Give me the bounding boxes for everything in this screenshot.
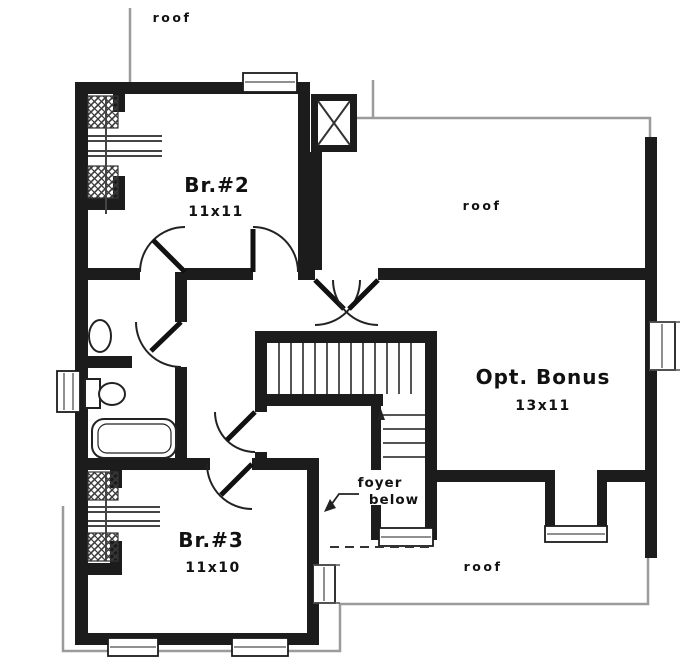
window-br3-bottom-right — [232, 638, 288, 656]
wall-bath-a — [175, 272, 187, 322]
wall-separator-c — [298, 268, 315, 280]
closet-shelf-hatch — [88, 166, 118, 198]
wall-stair-left-upper — [255, 331, 267, 394]
roof-label-top: roof — [153, 10, 192, 25]
wall-stair-top — [255, 331, 437, 343]
door-stair-landing — [215, 412, 255, 452]
door-br2-right — [253, 227, 298, 272]
closet-shelf-lines — [88, 507, 160, 526]
room-dims-br2: 11x11 — [188, 204, 244, 220]
door-leaf — [151, 322, 181, 351]
closet-shelf-lines — [88, 136, 162, 156]
wall-separator-b — [185, 268, 253, 280]
window-br3-bottom-left — [108, 638, 158, 656]
closet-shelf-hatch — [88, 472, 118, 500]
wall-stair-midrail — [255, 394, 383, 406]
toilet-bowl-icon — [99, 383, 125, 405]
floor-plan-drawing: roof Br.#2 11x11 roof Opt. Bonus 13x11 f… — [0, 0, 683, 664]
labels: roof Br.#2 11x11 roof Opt. Bonus 13x11 f… — [153, 10, 611, 576]
wall-separator-d — [378, 268, 652, 280]
window-br2-top — [243, 73, 297, 92]
wall-bath-divider — [75, 356, 132, 368]
roof-label-bottom: roof — [464, 559, 503, 574]
stair-treads-lower — [383, 415, 425, 457]
door-leaf — [349, 280, 378, 309]
floor-plan: roof Br.#2 11x11 roof Opt. Bonus 13x11 f… — [0, 0, 683, 664]
window-bath-left — [57, 371, 80, 412]
wall-br3-top-b — [252, 458, 319, 470]
window-bonus-right — [649, 322, 680, 370]
wall-br3-closet-horz — [75, 563, 122, 575]
door-leaf — [221, 464, 252, 495]
foyer-leader-line — [331, 494, 359, 505]
room-dims-bonus: 13x11 — [515, 398, 571, 414]
door-swing-arc — [253, 227, 298, 272]
window-br3-side — [313, 565, 340, 603]
wall-roof-boundary — [310, 152, 322, 270]
wall-stair-left-lower-a — [255, 394, 267, 412]
toilet-tank-icon — [85, 379, 100, 408]
room-name-br2: Br.#2 — [184, 173, 250, 197]
window-frame — [57, 371, 80, 412]
wall-stair-right — [425, 331, 437, 540]
closet-shelf-hatch — [88, 533, 118, 561]
closet-shelf-hatch — [88, 96, 118, 128]
door-leaf — [227, 412, 255, 440]
room-dims-br3: 11x10 — [185, 560, 241, 576]
window-foyer — [379, 528, 433, 546]
foyer-below-label-line2: below — [369, 492, 419, 508]
roof-label-right: roof — [463, 198, 502, 213]
sink-icon — [89, 320, 111, 352]
room-name-bonus: Opt. Bonus — [476, 365, 611, 389]
closet-br3 — [88, 472, 160, 561]
foyer-below-label-line1: foyer — [358, 475, 403, 491]
wall-separator-a — [75, 268, 140, 280]
window-dormer — [545, 526, 607, 542]
stair-treads-upper — [279, 343, 411, 394]
chimney — [311, 94, 357, 152]
wall-br2-closet-horz — [75, 198, 125, 210]
door-br2-left — [140, 227, 185, 272]
wall-br3-top-a — [75, 458, 210, 470]
wall-br2-right — [298, 82, 310, 280]
wall-bonus-bottom-a — [430, 470, 553, 482]
door-bathroom — [136, 322, 181, 367]
roof-eave-line-upper-right — [357, 118, 650, 137]
door-leaf — [153, 240, 185, 272]
wall-br3-right — [307, 458, 319, 645]
door-br3 — [207, 464, 252, 509]
wall-bonus-bottom-b — [597, 470, 645, 482]
room-name-br3: Br.#3 — [178, 528, 244, 552]
